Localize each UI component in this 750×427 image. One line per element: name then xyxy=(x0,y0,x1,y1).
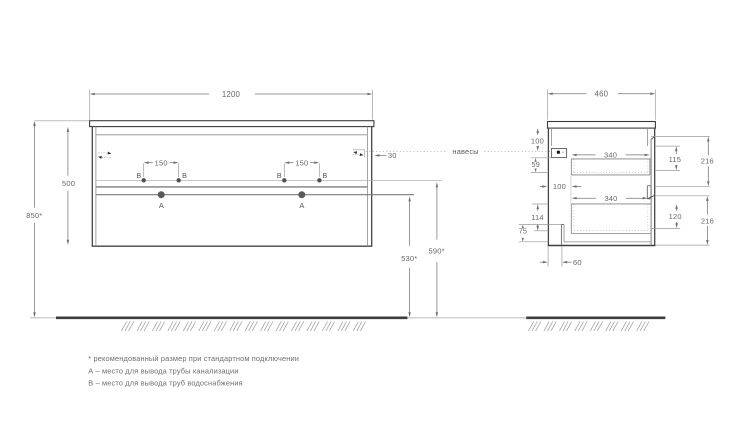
svg-text:А – место для вывода трубы кан: А – место для вывода трубы канализации xyxy=(88,367,238,376)
svg-text:В – место для вывода труб водо: В – место для вывода труб водоснабжения xyxy=(88,378,243,387)
svg-text:100: 100 xyxy=(531,136,544,145)
svg-text:340: 340 xyxy=(604,194,617,203)
svg-text:59: 59 xyxy=(532,160,541,169)
svg-text:590*: 590* xyxy=(428,246,444,255)
svg-text:A: A xyxy=(159,201,164,210)
svg-text:500: 500 xyxy=(62,179,75,188)
svg-text:B: B xyxy=(136,171,141,180)
svg-text:530*: 530* xyxy=(401,254,417,263)
svg-text:120: 120 xyxy=(669,212,682,221)
svg-text:60: 60 xyxy=(573,258,582,267)
svg-text:B: B xyxy=(322,171,327,180)
svg-text:1200: 1200 xyxy=(222,90,241,99)
svg-text:216: 216 xyxy=(701,216,714,225)
svg-text:B: B xyxy=(277,171,282,180)
svg-text:115: 115 xyxy=(669,155,682,164)
svg-text:100: 100 xyxy=(553,182,566,191)
svg-text:75: 75 xyxy=(519,227,528,236)
svg-text:850*: 850* xyxy=(26,211,42,220)
svg-text:30: 30 xyxy=(388,151,397,160)
svg-text:340: 340 xyxy=(604,151,617,160)
svg-text:навесы: навесы xyxy=(452,147,478,156)
svg-text:A: A xyxy=(299,201,304,210)
svg-text:* рекомендованный размер при с: * рекомендованный размер при стандартном… xyxy=(88,354,299,363)
svg-text:B: B xyxy=(182,171,187,180)
svg-text:216: 216 xyxy=(701,157,714,166)
svg-text:460: 460 xyxy=(595,90,609,99)
svg-text:150: 150 xyxy=(155,158,168,167)
svg-text:150: 150 xyxy=(295,158,308,167)
svg-text:114: 114 xyxy=(531,213,544,222)
